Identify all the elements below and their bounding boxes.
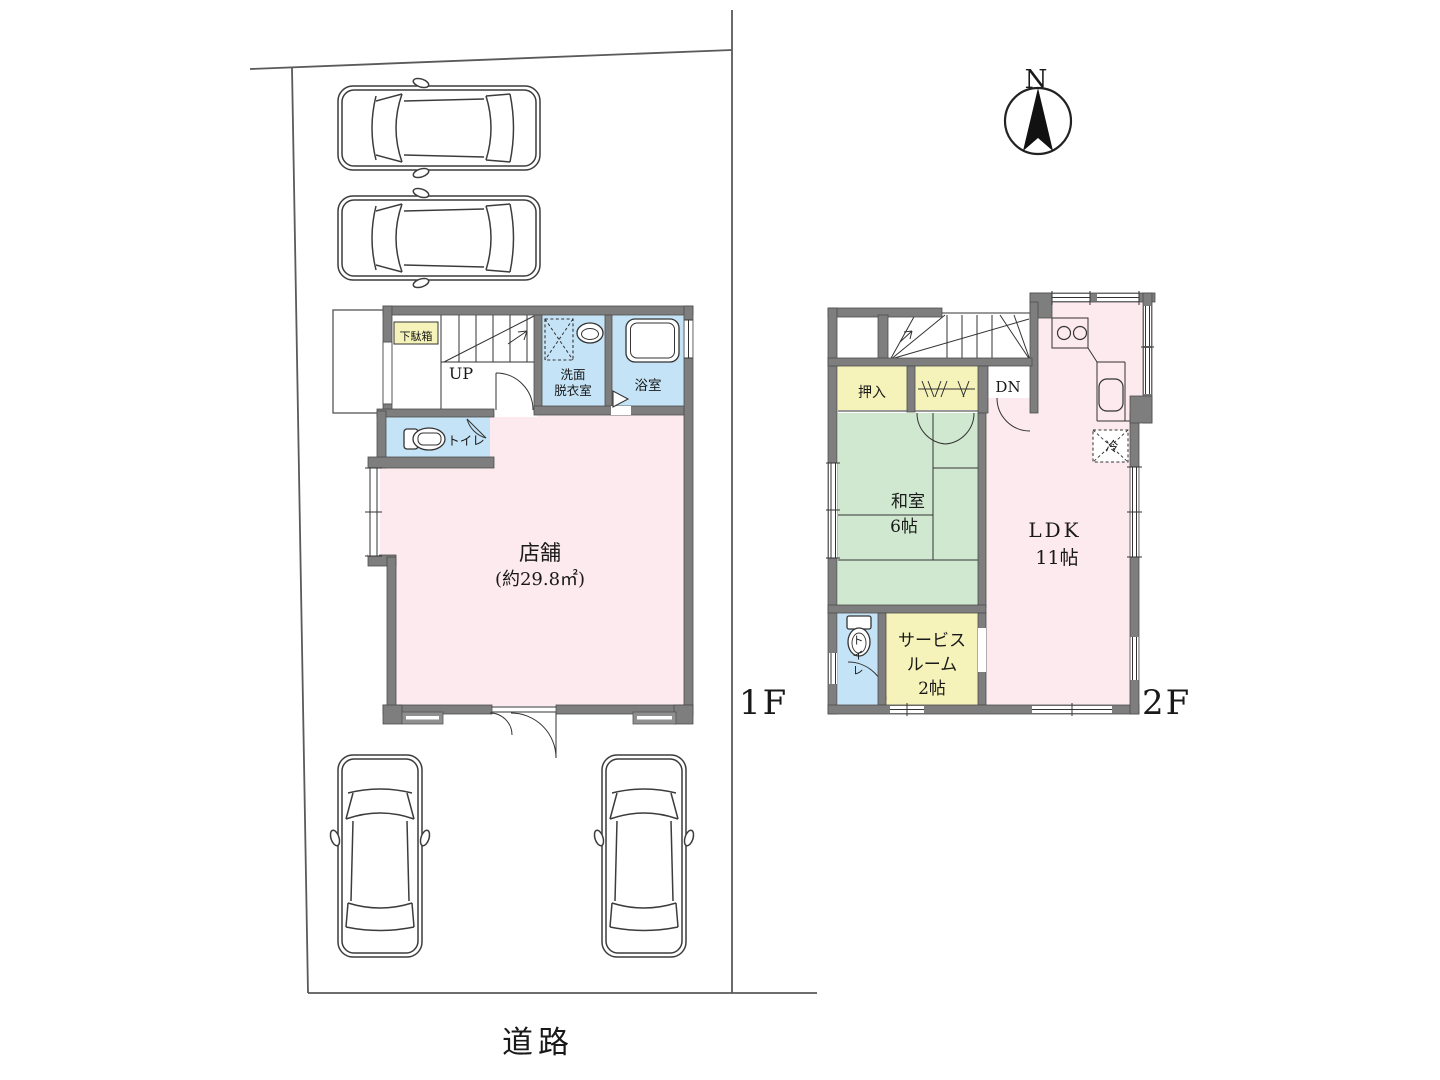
shoe-cabinet-label: 下駄箱 — [400, 329, 433, 343]
floor-label-2f: 2F — [1142, 683, 1191, 723]
toilet-2f-char-2: イ — [853, 649, 864, 662]
bath-door-gap — [611, 406, 631, 415]
1f-porch — [333, 310, 390, 413]
washroom-label-line1: 洗面 — [560, 367, 585, 382]
sink-icon — [577, 323, 603, 343]
oshiire-label: 押入 — [858, 385, 886, 401]
service-room-label-line2: ルーム — [907, 655, 958, 675]
bathroom-label: 浴室 — [635, 377, 662, 394]
floor-label-1f: 1F — [739, 683, 788, 723]
washitsu-label: 和室 — [891, 492, 925, 512]
north-compass: N — [1005, 65, 1071, 154]
washroom-label-line2: 脱衣室 — [554, 383, 592, 398]
ldk-label: LDK — [1028, 518, 1081, 542]
floorplan-2f: 押入 DN 和室 6帖 LDK 11帖 サービス ルーム 2帖 冷 ト イ レ — [826, 291, 1155, 716]
shop-label: 店舗 — [519, 541, 561, 565]
floorplan-1f: 下駄箱 UP 洗面 脱衣室 浴室 トイレ 店舗 (約29.8㎡) — [333, 306, 695, 758]
car-icon-bottom-1 — [329, 755, 432, 957]
ldk-size-label: 11帖 — [1035, 547, 1078, 569]
washitsu-size-label: 6帖 — [890, 517, 918, 537]
service-opening — [978, 628, 986, 672]
boundary-left-line — [292, 68, 308, 993]
car-icon-top-2 — [338, 187, 540, 290]
bathtub-icon — [626, 319, 679, 362]
stairs-up-label: UP — [449, 364, 473, 383]
stairs-down-label: DN — [995, 378, 1020, 396]
toilet-icon-1f — [404, 428, 445, 450]
service-room-label-line3: 2帖 — [918, 679, 946, 699]
boundary-top-line — [250, 50, 732, 69]
car-icon-top-1 — [338, 77, 540, 180]
toilet-2f-char-1: ト — [853, 634, 864, 647]
service-room-label-line1: サービス — [898, 631, 966, 651]
toilet-2f-char-3: レ — [853, 664, 864, 677]
floorplan-page: 下駄箱 UP 洗面 脱衣室 浴室 トイレ 店舗 (約29.8㎡) 1F — [0, 0, 1440, 1080]
toilet-label-1f: トイレ — [447, 433, 485, 448]
floorplan-canvas: 下駄箱 UP 洗面 脱衣室 浴室 トイレ 店舗 (約29.8㎡) 1F — [0, 0, 1440, 1080]
road-label: 道路 — [502, 1025, 574, 1061]
car-icon-bottom-2 — [593, 755, 696, 957]
room-kitchen — [1038, 302, 1143, 418]
ldk-doorway — [988, 398, 1030, 413]
entry-door-gap — [383, 342, 392, 404]
refrigerator-label: 冷 — [1105, 440, 1118, 455]
north-arrow-icon — [1023, 88, 1053, 151]
shop-area-label: (約29.8㎡) — [495, 568, 585, 590]
